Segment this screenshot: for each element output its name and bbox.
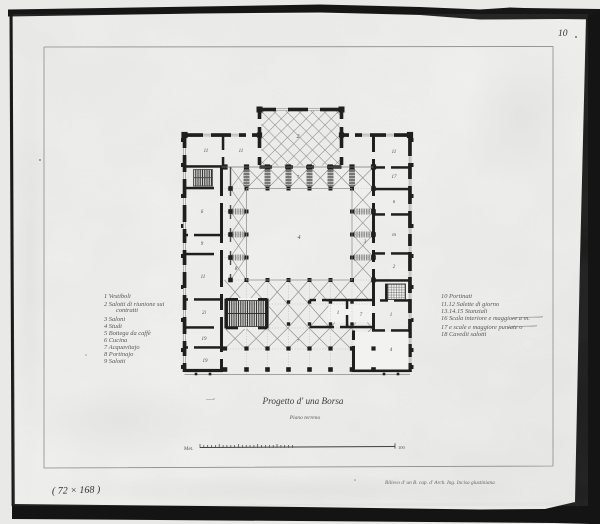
svg-text:Progetto d' una Borsa: Progetto d' una Borsa	[262, 396, 344, 406]
svg-text:9 Salotti: 9 Salotti	[104, 358, 126, 365]
svg-text:4 Studi: 4 Studi	[104, 323, 122, 330]
svg-text:11: 11	[392, 150, 397, 155]
svg-text:4: 4	[298, 234, 301, 241]
svg-text:13.14.15 Stanziali: 13.14.15 Stanziali	[441, 308, 488, 315]
svg-text:Piano terreno: Piano terreno	[289, 415, 321, 421]
svg-text:Rilievo d' un B. cap. d' Arch.: Rilievo d' un B. cap. d' Arch. Ing. Inci…	[384, 480, 495, 486]
svg-text:18 Cavedii salotti: 18 Cavedii salotti	[441, 331, 487, 338]
svg-text:17: 17	[392, 175, 398, 180]
svg-text:19: 19	[202, 337, 208, 342]
svg-text:11: 11	[204, 149, 209, 154]
svg-text:16 Scala interiore e maggio: 16 Scala interiore e maggiore a m.	[441, 315, 530, 322]
svg-text:Met.: Met.	[184, 447, 193, 452]
svg-text:1: 1	[390, 313, 393, 318]
svg-text:10 Portinati: 10 Portinati	[441, 293, 472, 300]
svg-text:1 Vestiboli: 1 Vestiboli	[104, 293, 131, 300]
svg-text:11.12 Salette di giorno: 11.12 Salette di giorno	[441, 301, 499, 308]
svg-text:2i: 2i	[202, 311, 207, 316]
svg-text:19: 19	[203, 359, 209, 364]
svg-text:1: 1	[337, 311, 340, 316]
svg-text:7 Acquavitajo: 7 Acquavitajo	[104, 344, 140, 351]
svg-text:m: m	[392, 233, 396, 238]
svg-text:11: 11	[201, 275, 206, 280]
svg-text:2: 2	[297, 134, 300, 140]
svg-text:6 Cucina: 6 Cucina	[104, 337, 127, 344]
svg-text:100: 100	[398, 445, 406, 450]
svg-text:contratti: contratti	[116, 307, 138, 314]
svg-text:11: 11	[239, 149, 244, 154]
svg-text:8 Portinajo: 8 Portinajo	[104, 351, 133, 358]
svg-text:5 Bottega da caffè: 5 Bottega da caffè	[104, 330, 151, 337]
svg-text:3 Saloni: 3 Saloni	[103, 316, 125, 323]
svg-text:10: 10	[558, 29, 568, 39]
svg-text:( 72 × 168 ): ( 72 × 168 )	[52, 484, 101, 497]
svg-text:17 e scale e maggiore puni: 17 e scale e maggiore puniate o	[441, 324, 522, 331]
